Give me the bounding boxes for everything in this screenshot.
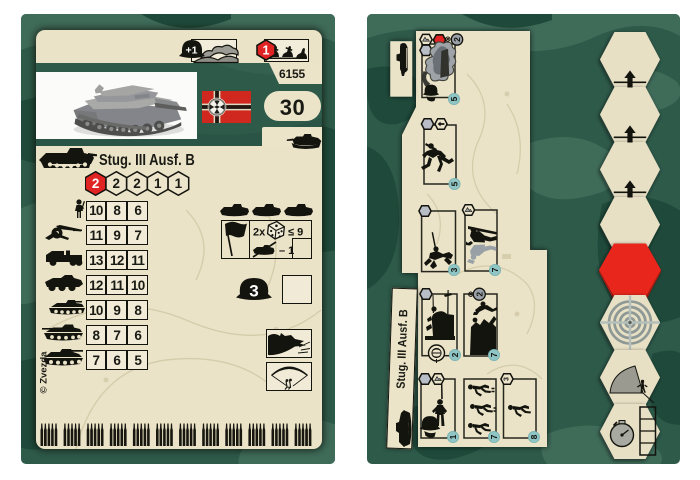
svg-text:2: 2 bbox=[133, 176, 141, 191]
svg-text:7: 7 bbox=[489, 352, 499, 357]
svg-text:2: 2 bbox=[113, 176, 121, 191]
svg-text:≤ 9: ≤ 9 bbox=[288, 226, 303, 238]
svg-text:1: 1 bbox=[154, 176, 162, 191]
svg-text:5: 5 bbox=[449, 96, 459, 101]
svg-text:+1: +1 bbox=[186, 45, 198, 57]
svg-text:2: 2 bbox=[92, 176, 100, 191]
svg-text:7: 7 bbox=[490, 267, 500, 272]
svg-text:3: 3 bbox=[249, 282, 258, 301]
svg-text:2: 2 bbox=[474, 292, 484, 297]
svg-text:3: 3 bbox=[449, 267, 459, 272]
svg-text:1: 1 bbox=[262, 43, 269, 57]
svg-text:2: 2 bbox=[452, 37, 462, 42]
svg-text:2: 2 bbox=[450, 352, 460, 357]
svg-text:1: 1 bbox=[175, 176, 183, 191]
svg-text:3: 3 bbox=[504, 377, 511, 381]
svg-text:5: 5 bbox=[450, 181, 460, 186]
svg-text:2x: 2x bbox=[253, 226, 266, 238]
svg-text:8: 8 bbox=[529, 434, 539, 439]
svg-text:1: 1 bbox=[448, 434, 458, 439]
svg-text:7: 7 bbox=[489, 434, 499, 439]
